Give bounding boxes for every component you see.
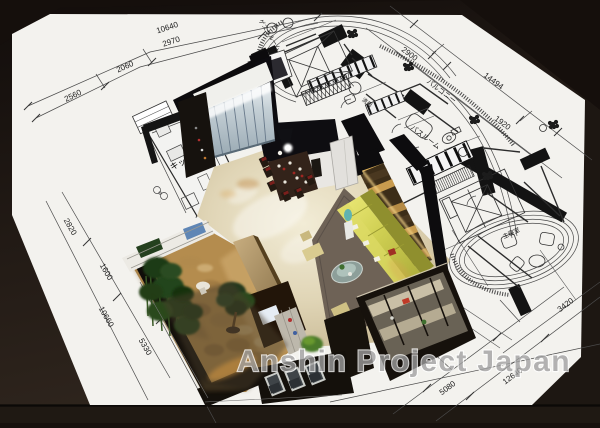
svg-text:Anshin Project Japan: Anshin Project Japan (237, 345, 571, 378)
